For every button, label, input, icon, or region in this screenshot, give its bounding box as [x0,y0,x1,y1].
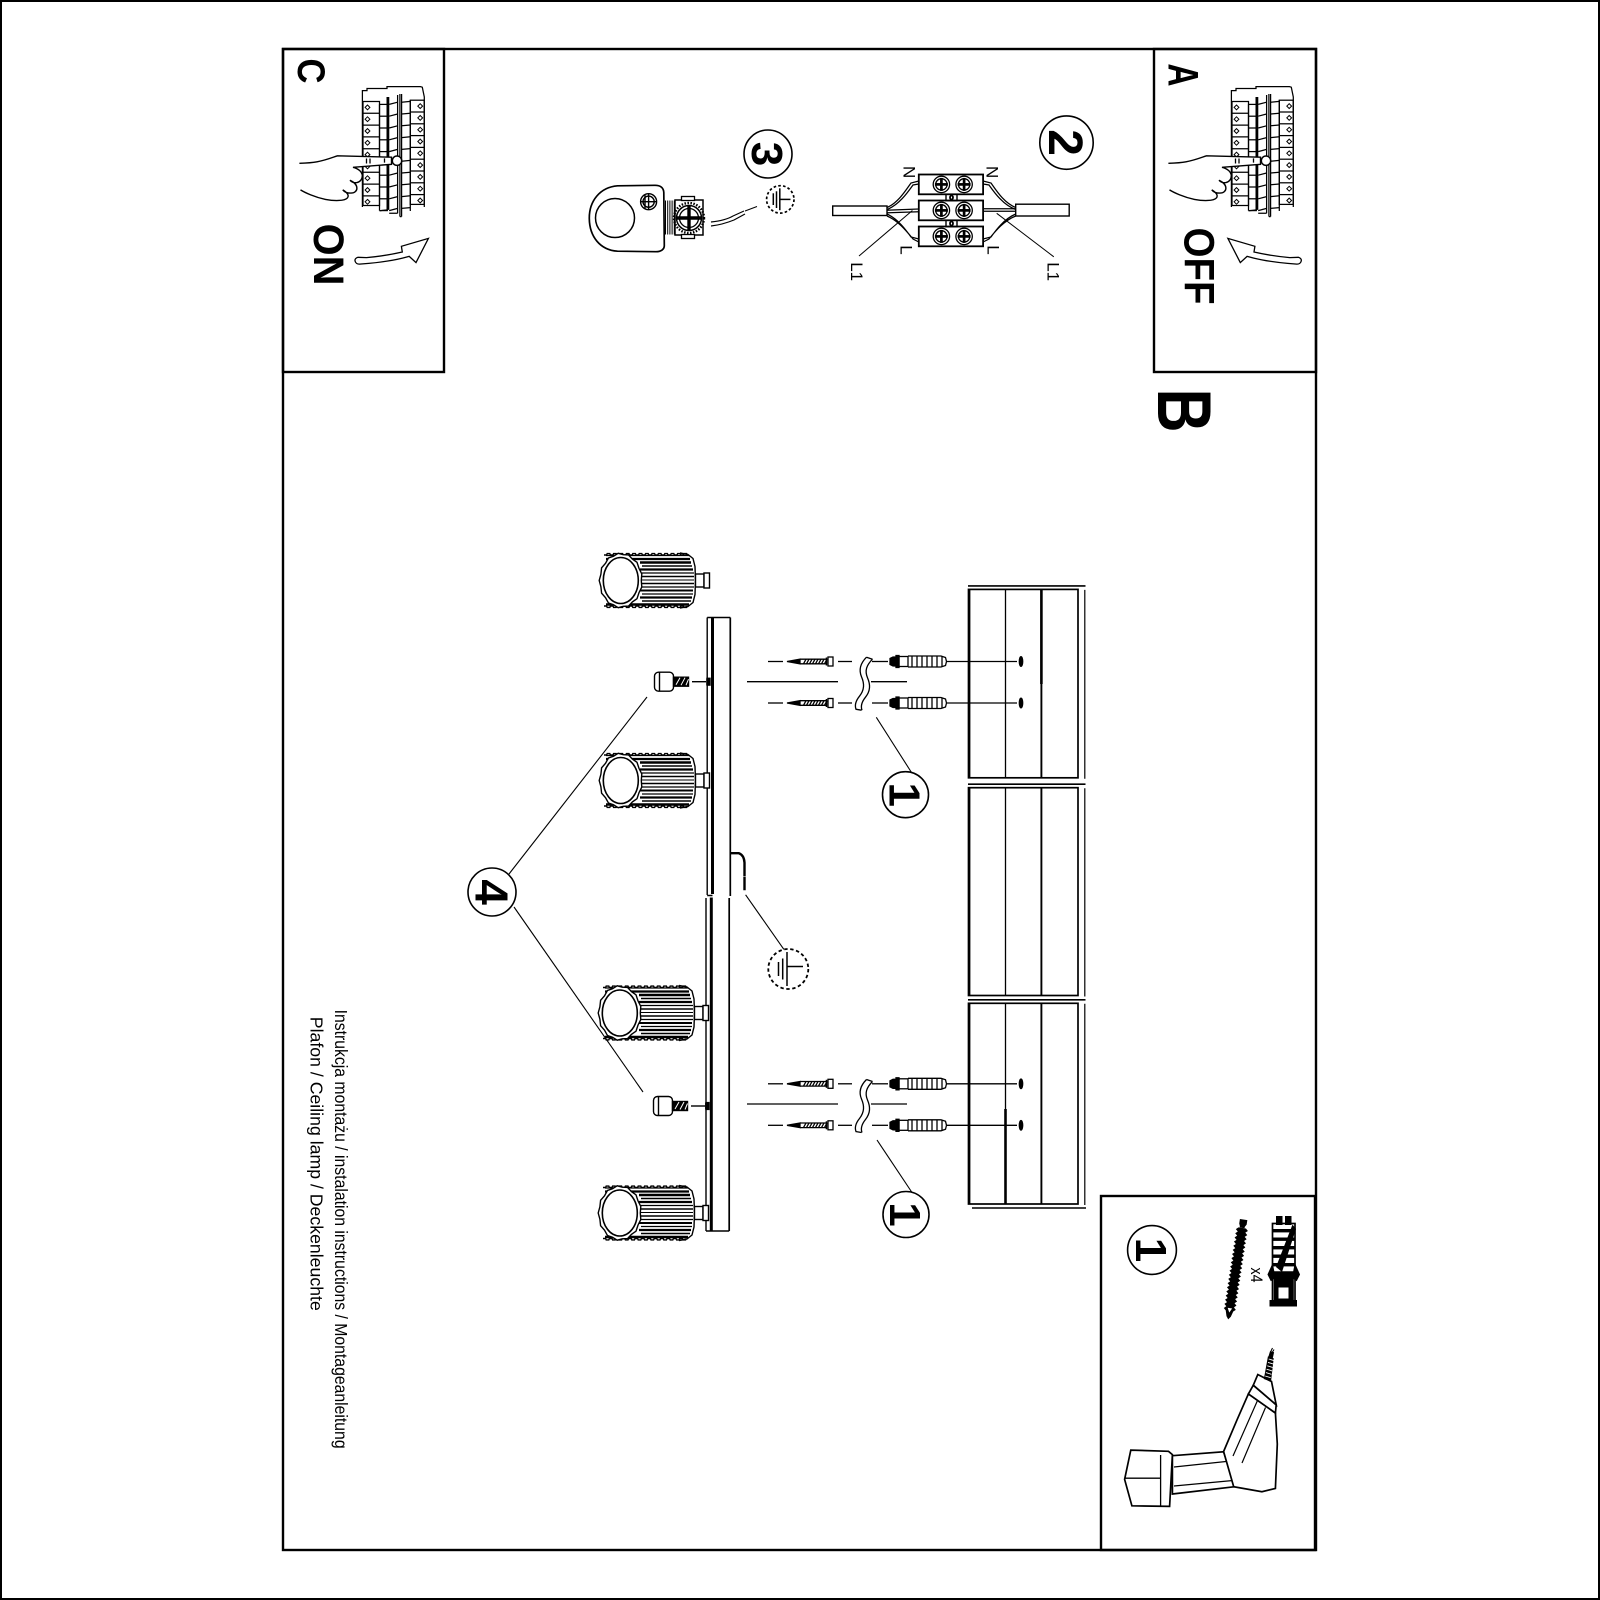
svg-text:1: 1 [1126,1238,1175,1262]
svg-text:2: 2 [1038,129,1091,156]
svg-text:OFF: OFF [1175,228,1223,305]
svg-text:Plafon / Ceiling lamp / Decken: Plafon / Ceiling lamp / Deckenleuchte [307,1017,327,1311]
svg-text:A: A [1159,64,1207,87]
svg-text:L1: L1 [1044,262,1063,281]
svg-text:B: B [1141,389,1226,433]
svg-text:1: 1 [880,782,929,806]
svg-text:N: N [983,166,1002,178]
svg-text:x4: x4 [1247,1268,1266,1283]
svg-text:N: N [899,166,918,178]
svg-text:L: L [897,245,916,254]
svg-text:L1: L1 [847,262,866,281]
svg-text:ON: ON [304,224,352,286]
svg-text:C: C [289,59,332,84]
svg-text:L: L [984,245,1003,254]
svg-text:1: 1 [880,1202,929,1226]
svg-text:4: 4 [465,879,517,905]
svg-text:Instrukcja montażu / instalati: Instrukcja montażu / instalation instruc… [331,1010,351,1449]
svg-text:3: 3 [742,142,791,166]
